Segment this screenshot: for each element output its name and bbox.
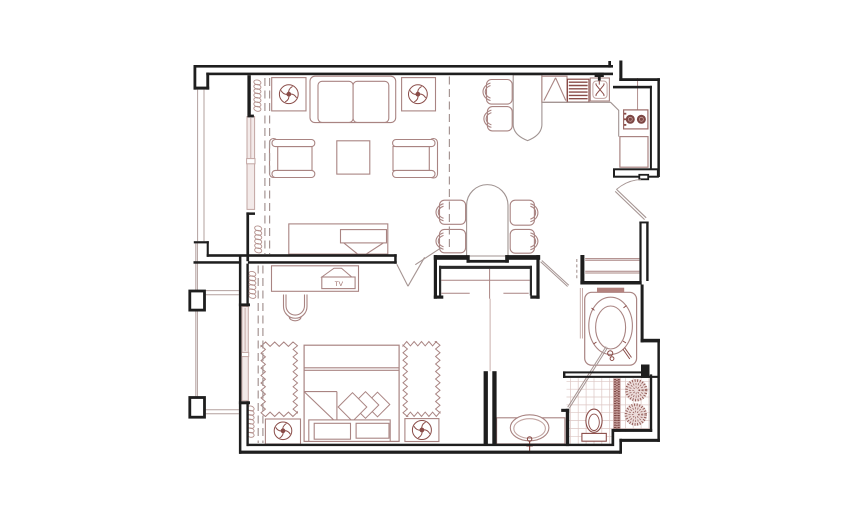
svg-text:TV: TV xyxy=(335,281,344,288)
